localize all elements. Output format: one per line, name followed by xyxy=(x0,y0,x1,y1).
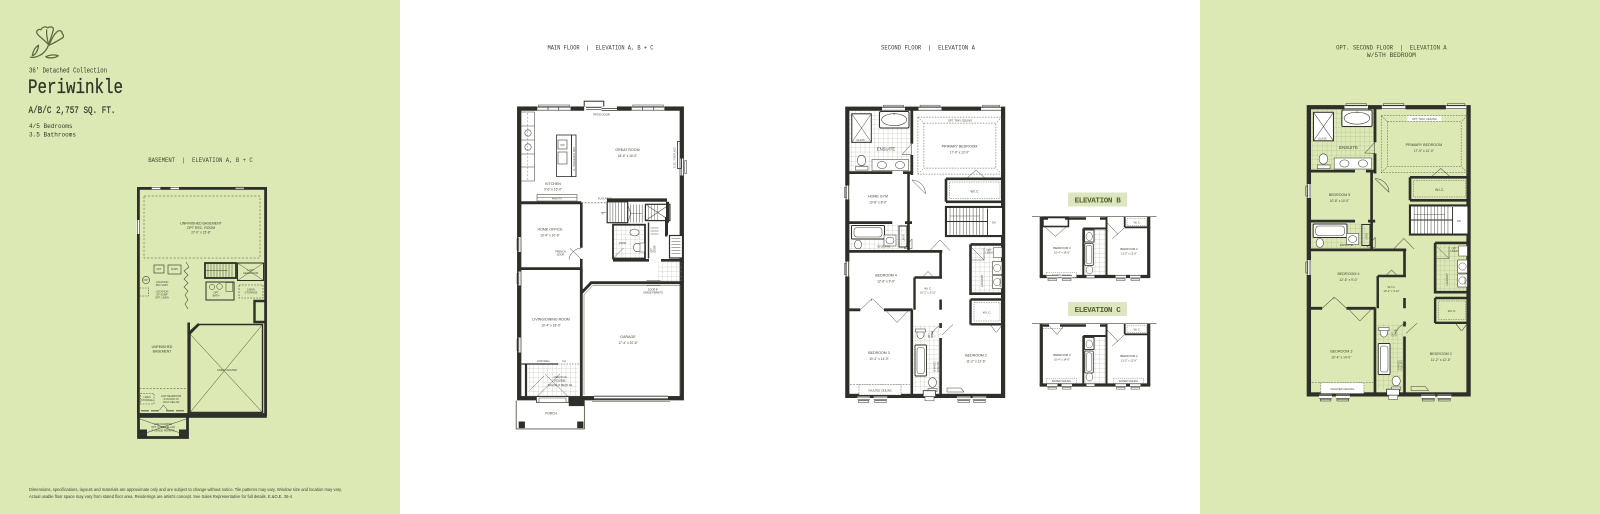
svg-text:10'-2" x 3'-11": 10'-2" x 3'-11" xyxy=(920,290,936,294)
svg-text:W.I.C.: W.I.C. xyxy=(1134,222,1141,225)
svg-text:GRADE PERMITS: GRADE PERMITS xyxy=(643,292,663,295)
svg-text:BATH: BATH xyxy=(213,294,220,298)
svg-text:LIVING/DINING ROOM: LIVING/DINING ROOM xyxy=(532,318,570,322)
svg-text:11'-2" x 12'-6": 11'-2" x 12'-6" xyxy=(1121,251,1137,255)
svg-text:DOOR: DOOR xyxy=(655,245,657,252)
svg-text:UPPERS: UPPERS xyxy=(1000,277,1002,287)
svg-text:MAY VARY: MAY VARY xyxy=(156,284,169,287)
svg-text:W.I.C.: W.I.C. xyxy=(983,311,992,315)
svg-text:27'-0" x 15'-8": 27'-0" x 15'-8" xyxy=(191,231,211,235)
svg-text:OPT: OPT xyxy=(652,247,654,252)
svg-text:'LINEN': 'LINEN' xyxy=(985,253,993,255)
svg-text:BEDROOM 4: BEDROOM 4 xyxy=(875,274,897,278)
svg-text:W/5TH BEDROOM: W/5TH BEDROOM xyxy=(1367,52,1416,60)
svg-text:BASEMENT: BASEMENT xyxy=(153,350,172,354)
svg-text:PL. BREAKFAST BAR: PL. BREAKFAST BAR xyxy=(573,147,576,171)
svg-text:ELEVATION C: ELEVATION C xyxy=(1075,307,1122,315)
svg-text:UNFINISHED: UNFINISHED xyxy=(152,345,173,349)
svg-text:PATIO DOOR: PATIO DOOR xyxy=(593,112,610,116)
svg-text:10'-4" x 14'-0": 10'-4" x 14'-0" xyxy=(869,357,889,361)
svg-text:F.A.: F.A. xyxy=(562,360,567,363)
svg-text:Actual usable floor space may: Actual usable floor space may vary from … xyxy=(29,494,292,499)
svg-text:BASEMENT | ELEVATION A, B +: BASEMENT | ELEVATION A, B + C xyxy=(148,157,253,165)
svg-text:10'-8" x 8'-0": 10'-8" x 8'-0" xyxy=(869,201,887,205)
svg-text:10'-4" x 14'-0": 10'-4" x 14'-0" xyxy=(1054,357,1070,361)
svg-text:ENSUITE: ENSUITE xyxy=(937,361,940,372)
svg-text:OPT REC. ROOM: OPT REC. ROOM xyxy=(187,226,215,230)
svg-text:BEDROOM 5: BEDROOM 5 xyxy=(1329,193,1351,197)
svg-text:STORAGE: STORAGE xyxy=(245,291,258,295)
svg-text:12'-6" x 9'-0": 12'-6" x 9'-0" xyxy=(877,280,895,284)
svg-text:10'-4" x 18'-0": 10'-4" x 18'-0" xyxy=(541,324,561,328)
svg-text:GLASS: GLASS xyxy=(856,139,865,142)
svg-text:11'-2" x 12'-6": 11'-2" x 12'-6" xyxy=(966,360,985,364)
svg-text:PANTRY: PANTRY xyxy=(552,196,563,200)
svg-text:BEDROOM 2: BEDROOM 2 xyxy=(1120,247,1138,251)
svg-text:BEDROOM 2: BEDROOM 2 xyxy=(965,354,987,358)
svg-text:LOW WALL: LOW WALL xyxy=(537,360,551,363)
svg-text:10'-4" x 10'-0": 10'-4" x 10'-0" xyxy=(540,234,560,238)
svg-text:4/5 Bedrooms: 4/5 Bedrooms xyxy=(29,123,73,130)
svg-text:3.5 Bathrooms: 3.5 Bathrooms xyxy=(29,132,76,139)
svg-text:PORCH: PORCH xyxy=(545,412,557,416)
svg-text:SECOND FLOOR | ELEVATION A: SECOND FLOOR | ELEVATION A xyxy=(881,45,976,53)
svg-text:BEDROOM 2: BEDROOM 2 xyxy=(1120,354,1138,358)
svg-text:GREAT ROOM: GREAT ROOM xyxy=(615,148,639,152)
svg-text:5: 5 xyxy=(602,212,604,216)
svg-text:Dimensions, specifications, la: Dimensions, specifications, layouts and … xyxy=(29,487,342,492)
svg-text:GARAGE: GARAGE xyxy=(620,335,636,339)
svg-text:COLD CELLAR: COLD CELLAR xyxy=(163,401,180,404)
svg-text:18'-6" x 16'-0": 18'-6" x 16'-0" xyxy=(618,154,638,158)
svg-text:DW: DW xyxy=(561,144,566,147)
svg-text:W.I.C.: W.I.C. xyxy=(971,190,980,194)
svg-text:ENSUITE: ENSUITE xyxy=(877,245,890,249)
svg-text:HOME GYM: HOME GYM xyxy=(868,195,888,199)
svg-text:10'-8" x 10'-0": 10'-8" x 10'-0" xyxy=(1330,199,1350,203)
svg-text:ELEVATION B: ELEVATION B xyxy=(1075,198,1122,206)
svg-text:RAISED CEILING: RAISED CEILING xyxy=(1119,380,1138,383)
svg-text:RAISED CEILING: RAISED CEILING xyxy=(1052,380,1071,383)
svg-text:VAULTED CEILING: VAULTED CEILING xyxy=(868,389,892,393)
svg-text:HOME OFFICE: HOME OFFICE xyxy=(538,228,564,232)
svg-text:BEDROOM 3: BEDROOM 3 xyxy=(1053,246,1071,250)
svg-text:ENSUITE: ENSUITE xyxy=(877,147,896,152)
svg-text:IF GRADE PERMITS: IF GRADE PERMITS xyxy=(151,429,175,432)
svg-text:W.I.C.: W.I.C. xyxy=(924,287,932,291)
svg-text:A/B/C 2,757 SQ. FT.: A/B/C 2,757 SQ. FT. xyxy=(29,105,116,117)
svg-text:UNFINISHED BASEMENT: UNFINISHED BASEMENT xyxy=(180,222,222,226)
svg-text:Periwinkle: Periwinkle xyxy=(28,77,123,100)
svg-text:LINEN: LINEN xyxy=(903,234,906,241)
svg-text:DOOR: DOOR xyxy=(557,254,565,257)
svg-text:KITCHEN: KITCHEN xyxy=(545,182,561,186)
svg-text:BEDROOM 3: BEDROOM 3 xyxy=(1053,353,1071,357)
svg-text:HWT: HWT xyxy=(143,280,149,282)
svg-text:FURN: FURN xyxy=(171,268,178,271)
svg-text:10'-4" x 14'-0": 10'-4" x 14'-0" xyxy=(1054,250,1070,254)
svg-text:W.I.C.: W.I.C. xyxy=(1134,329,1141,332)
svg-text:OPT: OPT xyxy=(987,250,992,252)
svg-text:OPT: OPT xyxy=(157,268,162,271)
svg-text:FOYER: FOYER xyxy=(555,379,567,383)
svg-text:OPT: OPT xyxy=(929,333,931,338)
svg-text:RAILING IF REQ'D CE: RAILING IF REQ'D CE xyxy=(548,384,573,387)
svg-text:HEADROOM: HEADROOM xyxy=(243,271,258,275)
svg-text:LAUNDRY: LAUNDRY xyxy=(980,274,984,287)
svg-text:OPT. LINEN: OPT. LINEN xyxy=(155,297,169,300)
svg-text:OPT. TRAY CEILING: OPT. TRAY CEILING xyxy=(948,118,972,122)
svg-text:STORAGE: STORAGE xyxy=(141,399,153,402)
svg-text:PRIMARY BEDROOM: PRIMARY BEDROOM xyxy=(942,145,978,149)
svg-text:MAIN FLOOR | ELEVATION A, B: MAIN FLOOR | ELEVATION A, B + C xyxy=(548,45,654,53)
svg-text:11'-2" x 12'-6": 11'-2" x 12'-6" xyxy=(1121,358,1137,362)
svg-text:36' Detached Collection: 36' Detached Collection xyxy=(29,68,107,76)
svg-text:17'-4" x 20'-6": 17'-4" x 20'-6" xyxy=(618,341,638,345)
svg-text:DN: DN xyxy=(992,222,996,225)
svg-text:UNEXCAVATED: UNEXCAVATED xyxy=(217,368,237,372)
svg-text:9'-6" x 16'-0": 9'-6" x 16'-0" xyxy=(544,188,562,192)
svg-text:ELEC. FIREPLACE: ELEC. FIREPLACE xyxy=(674,147,677,168)
svg-text:17'-0" x 12'-0": 17'-0" x 12'-0" xyxy=(950,151,970,155)
svg-text:BEDROOM 3: BEDROOM 3 xyxy=(868,351,890,355)
svg-text:PWD: PWD xyxy=(619,241,627,245)
